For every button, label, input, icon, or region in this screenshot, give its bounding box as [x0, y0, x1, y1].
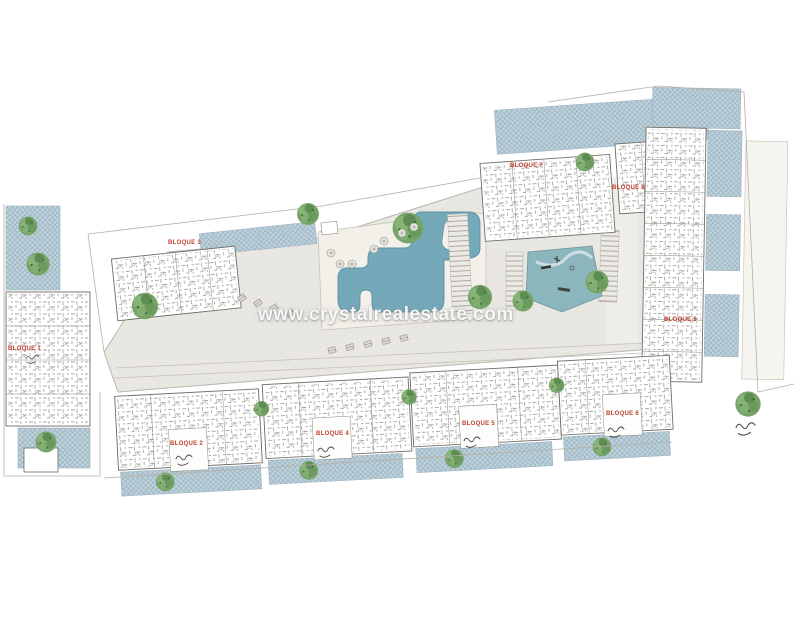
watermark-text: www.crystalrealestate.com [258, 304, 558, 326]
outbuilding [321, 221, 338, 235]
tree-icon [26, 252, 49, 275]
block-label-bloque-7: BLOQUE 7 [510, 163, 543, 169]
tree-icon [297, 203, 319, 225]
parasol-icon [336, 260, 344, 268]
tree-icon [585, 270, 608, 293]
block-label-bloque-5: BLOQUE 5 [462, 421, 495, 427]
tree-icon [576, 153, 595, 172]
tree-icon [393, 213, 424, 244]
block-label-bloque-2: BLOQUE 2 [170, 441, 203, 447]
site-plan-canvas: BLOQUE 1 BLOQUE 2 BLOQUE 3 BLOQUE 4 BLOQ… [0, 0, 800, 640]
parasol-icon [410, 223, 418, 231]
tree-icon [735, 391, 760, 416]
block-label-bloque-4: BLOQUE 4 [316, 431, 349, 437]
block-label-bloque-9: BLOQUE 9 [664, 317, 697, 323]
terrace-strip [704, 294, 739, 357]
building-cluster-bloque-9 [642, 87, 789, 383]
tree-icon [132, 293, 158, 319]
parasol-icon [327, 249, 335, 257]
terrace-strip [707, 130, 742, 197]
block-label-bloque-8: BLOQUE 8 [612, 185, 645, 191]
block-label-bloque-6: BLOQUE 6 [606, 411, 639, 417]
parasol-icon [348, 260, 356, 268]
terrace-strip [706, 214, 741, 271]
tree-icon [19, 217, 38, 236]
parasol-icon [380, 237, 388, 245]
tree-icon [36, 432, 57, 453]
roof-terrace-strip [652, 87, 741, 129]
stair-core [168, 428, 208, 472]
block-label-bloque-3: BLOQUE 3 [168, 240, 201, 246]
parasol-icon [398, 229, 406, 237]
road-right-outer [742, 141, 788, 380]
outbuilding [24, 448, 58, 472]
parasol-icon [370, 245, 378, 253]
stair-core [312, 416, 352, 460]
block-label-bloque-1: BLOQUE 1 [8, 346, 41, 352]
handwritten-mark [736, 423, 755, 435]
